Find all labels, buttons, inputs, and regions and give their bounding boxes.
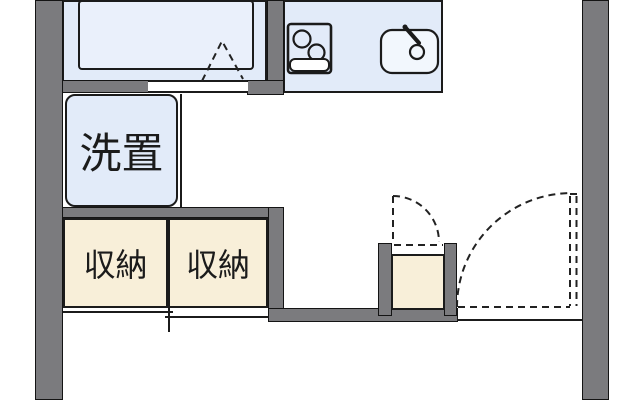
storage-right-label: 収納 (170, 220, 266, 306)
entry-threshold-line (457, 319, 582, 321)
entry-pier-right (444, 243, 457, 316)
bathtub (78, 0, 254, 70)
floor-plan: 洗置 収納 収納 (0, 0, 640, 400)
hallway-side-wall (268, 207, 284, 322)
washer-space-label: 洗置 (67, 96, 176, 205)
washer-space: 洗置 (65, 94, 178, 207)
hall-bottom-wall (268, 308, 458, 322)
sliding-door-track-left (63, 311, 173, 313)
hallway-floor (284, 95, 378, 308)
kitchen-counter (283, 0, 443, 93)
storage-closet-right: 収納 (168, 218, 268, 308)
bath-bottom-wall-corner (247, 80, 284, 95)
bathroom-door-opening (148, 82, 248, 93)
washroom-bottom-wall (62, 207, 284, 218)
storage-left-label: 収納 (65, 220, 166, 306)
left-wall (35, 0, 63, 400)
entry-pier-left (378, 243, 392, 316)
sliding-door-track-right (165, 316, 269, 318)
main-room-floor (63, 322, 582, 400)
entrance-floor (458, 95, 582, 308)
storage-closet-left: 収納 (63, 218, 168, 308)
interior-door-swing-icon (393, 196, 443, 245)
sliding-door-center-tick (168, 306, 170, 332)
entry-shoe-box (391, 254, 445, 310)
right-wall (582, 0, 609, 400)
bath-bottom-wall-left (62, 80, 149, 93)
washer-partition-line (180, 94, 182, 207)
washroom-floor (182, 93, 268, 207)
